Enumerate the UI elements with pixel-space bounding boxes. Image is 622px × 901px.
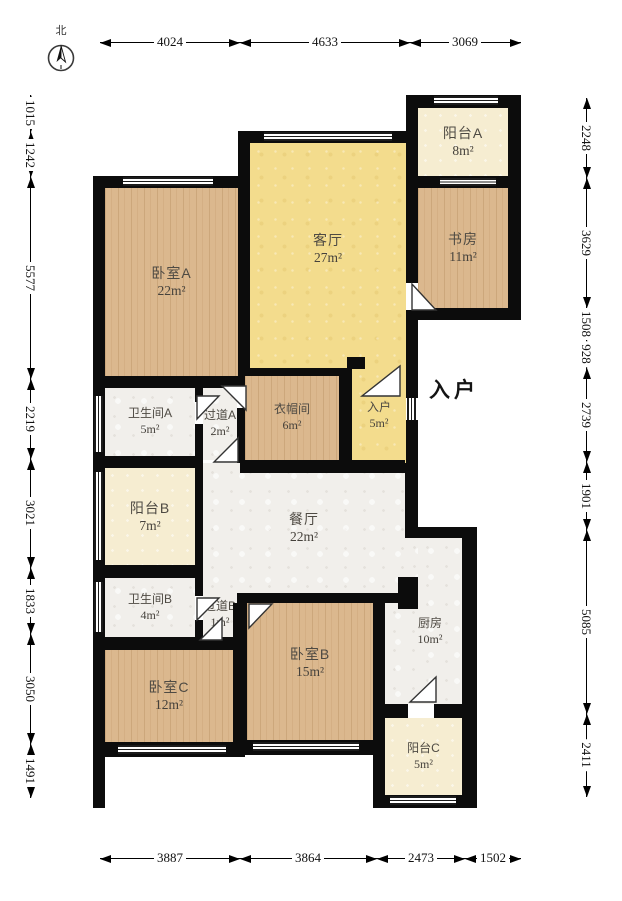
door-swing-balcony-c xyxy=(410,677,436,702)
door-swing-hallway-b xyxy=(200,618,222,640)
dim-label: 1901 xyxy=(578,480,594,512)
dim-label: 3069 xyxy=(449,34,481,50)
dim-label: 1015 xyxy=(22,97,38,129)
dim-label: 1508 xyxy=(578,308,594,340)
dim-label: 5577 xyxy=(22,262,38,294)
door-swing-bathroom-b xyxy=(197,598,219,620)
doors-layer xyxy=(0,0,622,901)
floor-plan-canvas: 北 卧室A22m² 客厅27m² 阳台A8m² 书房11m² 卫生间A5m² 过… xyxy=(0,0,622,901)
dim-label: 1502 xyxy=(477,850,509,866)
entry-marker: 入户 xyxy=(429,374,479,404)
dim-label: 4633 xyxy=(309,34,341,50)
dim-label: 2739 xyxy=(578,399,594,431)
dim-label: 1833 xyxy=(22,585,38,617)
dim-line-right xyxy=(586,98,587,797)
door-swing-cloakroom xyxy=(222,386,246,410)
dim-label: 2219 xyxy=(22,403,38,435)
dim-label: 3887 xyxy=(154,850,186,866)
dim-label: 1242 xyxy=(22,139,38,171)
door-swing-entry xyxy=(362,366,400,396)
dim-label: 928 xyxy=(578,341,594,367)
dim-label: 2411 xyxy=(578,739,594,771)
door-swing-bedroom-b xyxy=(249,604,272,628)
door-swing-bathroom-a xyxy=(197,396,219,419)
dim-label: 3050 xyxy=(22,673,38,705)
dim-label: 2248 xyxy=(578,122,594,154)
door-swing-study xyxy=(412,284,436,310)
dim-label: 4024 xyxy=(154,34,186,50)
dim-label: 2473 xyxy=(405,850,437,866)
dim-label: 3864 xyxy=(292,850,324,866)
dim-label: 3021 xyxy=(22,497,38,529)
dim-label: 1491 xyxy=(22,755,38,787)
dim-label: 5085 xyxy=(578,606,594,638)
dim-label: 3629 xyxy=(578,227,594,259)
door-swing-hallway-a xyxy=(214,438,238,462)
